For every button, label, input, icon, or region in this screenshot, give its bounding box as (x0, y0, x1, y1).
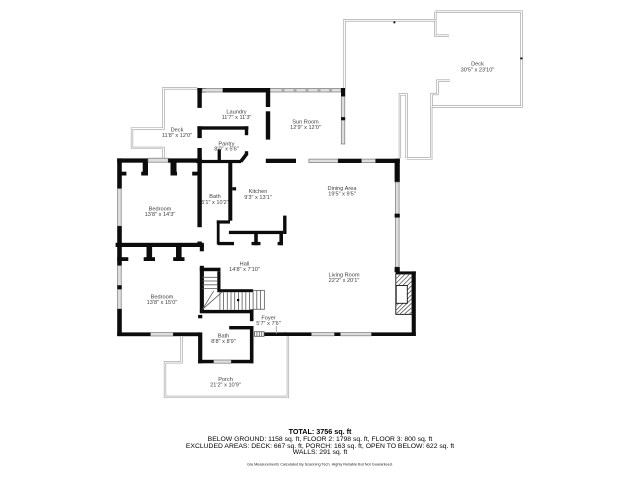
svg-text:22'2" x 20'1": 22'2" x 20'1" (329, 278, 360, 284)
svg-text:14'8" x 7'10": 14'8" x 7'10" (229, 267, 260, 273)
svg-text:TOTAL: 3756 sq. ft: TOTAL: 3756 sq. ft (289, 427, 352, 436)
svg-text:12'9" x 12'0": 12'9" x 12'0" (290, 125, 321, 131)
svg-text:5'1" x 10'2": 5'1" x 10'2" (201, 200, 229, 206)
svg-text:5'7" x 7'6": 5'7" x 7'6" (256, 321, 280, 327)
svg-text:21'2" x 10'9": 21'2" x 10'9" (210, 383, 241, 389)
svg-text:Gia Measurements Calculated By: Gia Measurements Calculated By Scanning … (247, 463, 393, 467)
svg-text:11'8" x 12'0": 11'8" x 12'0" (162, 133, 192, 139)
svg-text:9'3" x 13'1": 9'3" x 13'1" (244, 195, 272, 201)
svg-text:13'8" x 14'3": 13'8" x 14'3" (145, 212, 176, 218)
svg-text:WALLS: 291 sq. ft: WALLS: 291 sq. ft (293, 449, 348, 456)
svg-text:8'8" x 8'9": 8'8" x 8'9" (211, 339, 235, 345)
svg-text:13'8" x 15'0": 13'8" x 15'0" (147, 300, 178, 306)
svg-text:30'5" x 23'10": 30'5" x 23'10" (461, 68, 495, 74)
svg-text:19'5" x 9'5": 19'5" x 9'5" (328, 191, 356, 197)
svg-text:11'7" x 11'3": 11'7" x 11'3" (222, 115, 252, 121)
svg-text:8'0" x 5'6": 8'0" x 5'6" (214, 147, 238, 153)
